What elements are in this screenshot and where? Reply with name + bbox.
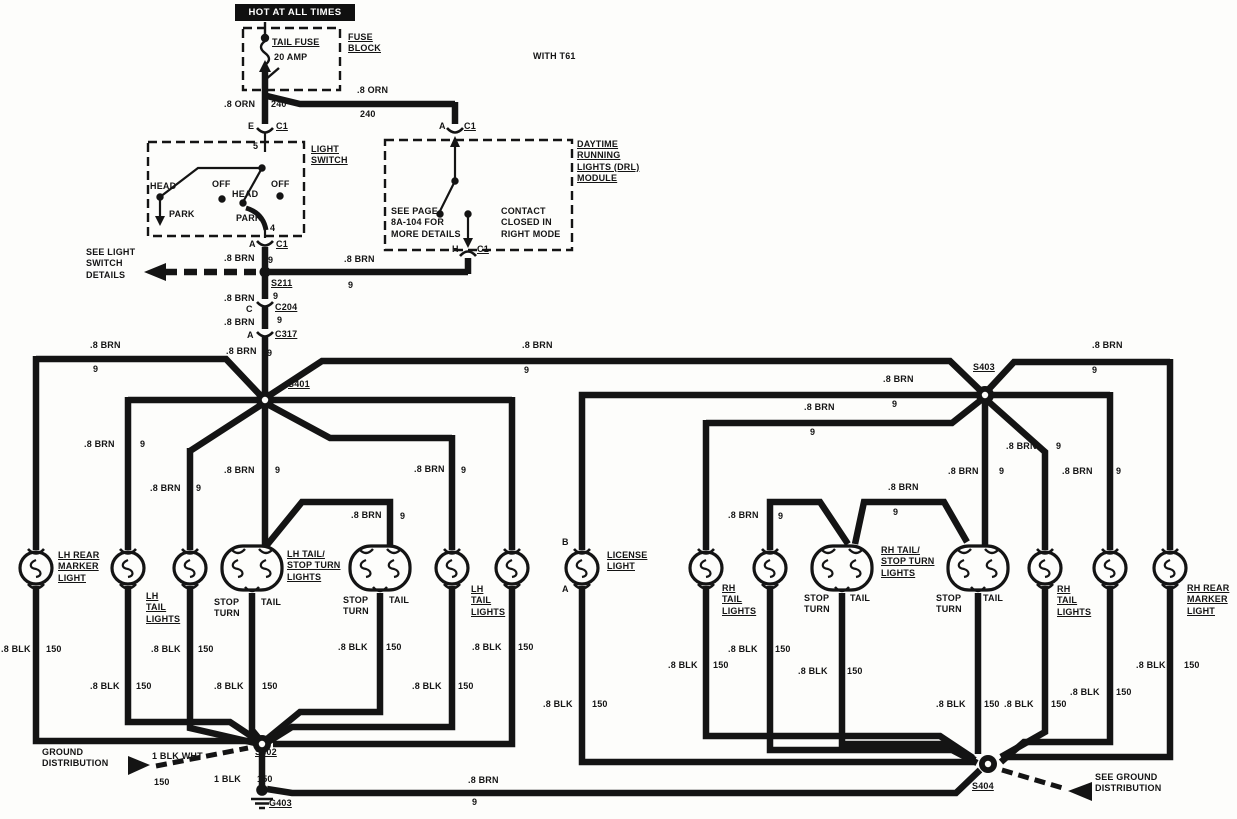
circuit-label: 150 — [1051, 699, 1067, 710]
circuit-label: 150 — [198, 644, 214, 655]
splice-label: S211 — [271, 278, 292, 289]
option-note: WITH T61 — [533, 51, 576, 62]
circuit-label: 9 — [268, 255, 273, 266]
switch-arrow — [155, 216, 165, 226]
wire-label: 1 BLK — [214, 774, 241, 785]
left-arrow-light-switch — [144, 263, 166, 281]
wire-label: .8 BLK — [1004, 699, 1034, 710]
note-contact: CONTACT CLOSED IN RIGHT MODE — [501, 206, 561, 240]
rh-tail-stop-turn-light-2 — [948, 546, 1008, 591]
note-ground-distribution: GROUND DISTRIBUTION — [42, 747, 108, 770]
lh-tail-light-2 — [174, 549, 206, 589]
splice-label: S402 — [255, 747, 277, 758]
pin-label: TAIL — [983, 593, 1003, 604]
splice-label: S403 — [973, 362, 995, 373]
circuit-label: 150 — [458, 681, 474, 692]
fuse-name-label: TAIL FUSE — [272, 37, 319, 48]
circuit-label: 9 — [1092, 365, 1097, 376]
wire-label: .8 ORN — [357, 85, 388, 96]
switch-pos-label: OFF — [271, 179, 290, 190]
pin-label: STOP TURN — [343, 595, 369, 618]
switch-pos-label: HEAD — [150, 181, 176, 192]
pin-label: A — [247, 330, 254, 341]
wire-label: .8 BLK — [728, 644, 758, 655]
circuit-label: 9 — [267, 348, 272, 359]
s401-branch-wires — [36, 356, 982, 550]
connector-label: C1 — [276, 239, 288, 250]
circuit-label: 9 — [1116, 466, 1121, 477]
splice-label: S401 — [288, 379, 310, 390]
wire-label: .8 BRN — [224, 253, 255, 264]
rh-tail-stop-turn-light-1 — [812, 546, 872, 591]
wire-label: .8 BRN — [414, 464, 445, 475]
wire-label: .8 BRN — [224, 293, 255, 304]
right-arrow-ground-lh — [128, 756, 150, 775]
circuit-label: 9 — [778, 511, 783, 522]
splice-s211 — [260, 267, 271, 278]
pin-label: STOP TURN — [804, 593, 830, 616]
wire-label: .8 BRN — [90, 340, 121, 351]
circuit-label: 9 — [93, 364, 98, 375]
lamp-name: RH REAR MARKER LIGHT — [1187, 583, 1229, 617]
connector-label: C317 — [275, 329, 297, 340]
circuit-label: 9 — [1056, 441, 1061, 452]
note-see-light-switch: SEE LIGHT SWITCH DETAILS — [86, 247, 135, 281]
circuit-label: 150 — [518, 642, 534, 653]
pin-label: A — [562, 584, 569, 595]
rh-rear-marker-light — [1154, 549, 1186, 589]
wire-label: .8 BLK — [214, 681, 244, 692]
wire-label: .8 BRN — [468, 775, 499, 786]
wire-label: .8 BLK — [543, 699, 573, 710]
circuit-label: 240 — [360, 109, 376, 120]
wire-label: .8 BLK — [1, 644, 31, 655]
lamp-name: RH TAIL/ STOP TURN LIGHTS — [881, 545, 934, 579]
pin-label: STOP TURN — [936, 593, 962, 616]
wire-label: .8 BRN — [150, 483, 181, 494]
wire-label: 1 BLK WHT — [152, 751, 203, 762]
splice-s401 — [256, 391, 274, 409]
wire-label: .8 ORN — [224, 99, 255, 110]
pin-label: TAIL — [389, 595, 409, 606]
circuit-label: 9 — [999, 466, 1004, 477]
pin-label: TAIL — [261, 597, 281, 608]
circuit-label: 150 — [1116, 687, 1132, 698]
circuit-label: 150 — [984, 699, 1000, 710]
wire-label: .8 BLK — [412, 681, 442, 692]
lh-tail-light-1 — [112, 549, 144, 589]
lamp-name: RH TAIL LIGHTS — [722, 583, 756, 617]
wire-label: .8 BRN — [804, 402, 835, 413]
circuit-label: 9 — [196, 483, 201, 494]
circuit-label: 9 — [277, 315, 282, 326]
circuit-label: 9 — [273, 291, 278, 302]
wire-label: .8 BRN — [883, 374, 914, 385]
wire-label: .8 BRN — [224, 465, 255, 476]
ground-label: G403 — [269, 798, 292, 809]
wire-label: .8 BLK — [668, 660, 698, 671]
dashed-wire-ground-rh — [1002, 770, 1066, 789]
switch-pos-label: PARK — [236, 213, 262, 224]
connector-label: C1 — [276, 121, 288, 132]
license-light — [566, 549, 598, 589]
pin-label: E — [248, 121, 254, 132]
connector-label: C1 — [464, 121, 476, 132]
circuit-label: 9 — [472, 797, 477, 808]
note-see-page: SEE PAGE 8A-104 FOR MORE DETAILS — [391, 206, 461, 240]
wire-label: .8 BRN — [224, 317, 255, 328]
lh-rear-marker-light — [20, 549, 52, 589]
wiring-diagram-page: HOT AT ALL TIMES TAIL FUSE20 AMPFUSE BLO… — [0, 0, 1237, 819]
switch-pos-label: HEAD — [232, 189, 258, 200]
circuit-label: 9 — [892, 399, 897, 410]
wire-label: .8 BRN — [728, 510, 759, 521]
wire-label: .8 BLK — [90, 681, 120, 692]
circuit-label: 240 — [271, 99, 287, 110]
lamp-name: LH TAIL LIGHTS — [471, 584, 505, 618]
switch-pos-label: OFF — [212, 179, 231, 190]
circuit-label: 150 — [262, 681, 278, 692]
pin-label: H — [452, 244, 459, 255]
circuit-label: 150 — [1184, 660, 1200, 671]
connector-label: C1 — [477, 244, 489, 255]
lamp-name: LH TAIL LIGHTS — [146, 591, 180, 625]
wire-label: .8 BLK — [1070, 687, 1100, 698]
splice-label: S404 — [972, 781, 994, 792]
pin-label: A — [249, 239, 256, 250]
switch-pos-label: PARK — [169, 209, 195, 220]
connector-label: C204 — [275, 302, 297, 313]
pin-label: A — [439, 121, 446, 132]
circuit-label: 150 — [136, 681, 152, 692]
lamp-name: LICENSE LIGHT — [607, 550, 647, 573]
pin-label: 5 — [253, 141, 258, 152]
circuit-label: 9 — [524, 365, 529, 376]
circuit-label: 9 — [140, 439, 145, 450]
wire-label: .8 BRN — [344, 254, 375, 265]
splice-s403 — [976, 386, 994, 404]
wire-label: .8 BRN — [522, 340, 553, 351]
rh-tail-light-1 — [690, 549, 722, 589]
wire-label: .8 BLK — [1136, 660, 1166, 671]
wire-label: .8 BRN — [1062, 466, 1093, 477]
wire-label: .8 BLK — [936, 699, 966, 710]
circuit-label: 9 — [348, 280, 353, 291]
drl-module-label: DAYTIME RUNNING LIGHTS (DRL) MODULE — [577, 139, 639, 184]
wire-label: .8 BRN — [948, 466, 979, 477]
rh-tail-light-4 — [1094, 549, 1126, 589]
lamp-name: LH TAIL/ STOP TURN LIGHTS — [287, 549, 340, 583]
lh-tail-stop-turn-light-2 — [350, 546, 410, 591]
circuit-label: 150 — [257, 774, 273, 785]
left-arrow-ground-rh — [1068, 782, 1092, 801]
lamp-name: RH TAIL LIGHTS — [1057, 584, 1091, 618]
light-switch-label: LIGHT SWITCH — [311, 144, 348, 167]
wire-label: .8 BRN — [1092, 340, 1123, 351]
circuit-label: 150 — [592, 699, 608, 710]
lh-tail-stop-turn-light-1 — [222, 546, 282, 591]
circuit-label: 150 — [386, 642, 402, 653]
circuit-label: 9 — [400, 511, 405, 522]
circuit-label: 150 — [713, 660, 729, 671]
drl-arrow-up — [450, 136, 460, 147]
pin-label: TAIL — [850, 593, 870, 604]
splice-s404 — [979, 755, 997, 773]
circuit-label: 9 — [810, 427, 815, 438]
wire-label: .8 BRN — [226, 346, 257, 357]
circuit-label: 150 — [46, 644, 62, 655]
wire-label: .8 BLK — [798, 666, 828, 677]
circuit-label: 9 — [275, 465, 280, 476]
wire-label: .8 BLK — [338, 642, 368, 653]
drl-arrow-down — [463, 238, 473, 248]
lh-tail-light-3 — [436, 549, 468, 589]
lamp-name: LH REAR MARKER LIGHT — [58, 550, 99, 584]
wire-label: .8 BRN — [84, 439, 115, 450]
rh-tail-light-3 — [1029, 549, 1061, 589]
pin-label: B — [562, 537, 569, 548]
wire-label: .8 BRN — [888, 482, 919, 493]
pin-label: C — [246, 304, 253, 315]
rh-tail-light-2 — [754, 549, 786, 589]
fuse-block-label: FUSE BLOCK — [348, 32, 381, 55]
wire-label: .8 BRN — [351, 510, 382, 521]
circuit-label: 150 — [847, 666, 863, 677]
circuit-label: 150 — [154, 777, 170, 788]
wiring-diagram-canvas — [0, 0, 1237, 819]
fuse-rating-label: 20 AMP — [274, 52, 307, 63]
wire-label: .8 BRN — [1006, 441, 1037, 452]
circuit-label: 150 — [775, 644, 791, 655]
wire-label: .8 BLK — [472, 642, 502, 653]
pin-label: STOP TURN — [214, 597, 240, 620]
wire-label: .8 BLK — [151, 644, 181, 655]
note-see-ground-distribution: SEE GROUND DISTRIBUTION — [1095, 772, 1161, 795]
pin-label: 4 — [270, 223, 275, 234]
s403-branch-wires — [582, 359, 1170, 550]
lh-tail-light-4 — [496, 549, 528, 589]
circuit-label: 9 — [893, 507, 898, 518]
hot-at-all-times-banner: HOT AT ALL TIMES — [235, 4, 355, 21]
circuit-label: 9 — [461, 465, 466, 476]
